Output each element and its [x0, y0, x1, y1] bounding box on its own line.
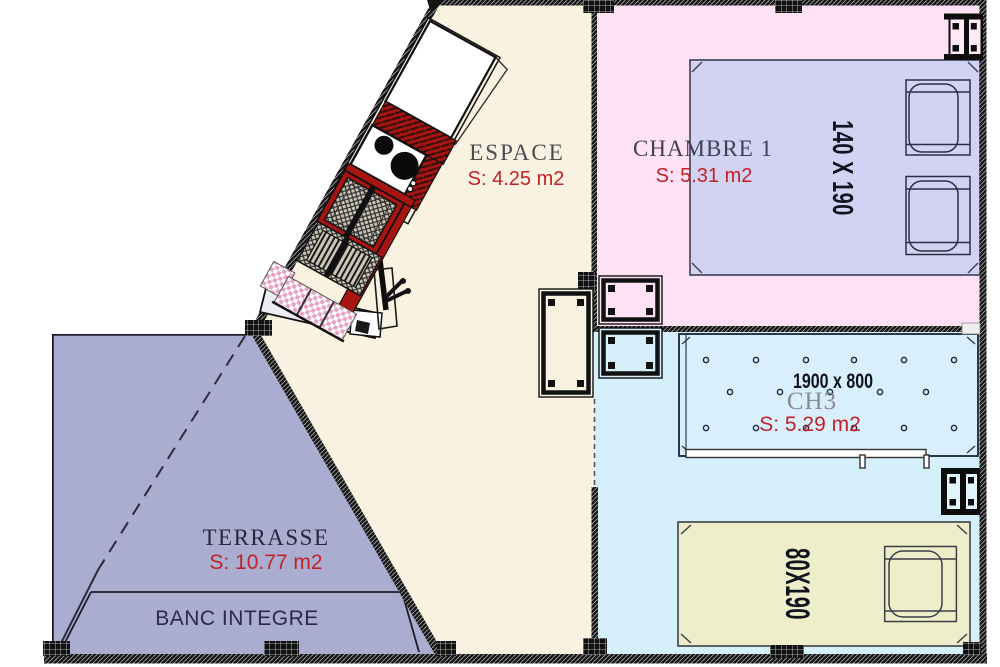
svg-text:S: 4.25 m2: S: 4.25 m2	[468, 168, 565, 190]
svg-text:BANC INTEGRE: BANC INTEGRE	[155, 607, 319, 630]
svg-text:ESPACE: ESPACE	[469, 140, 565, 165]
svg-text:CH3: CH3	[787, 388, 837, 415]
svg-text:80X190: 80X190	[779, 548, 817, 620]
svg-text:S: 5.29 m2: S: 5.29 m2	[759, 413, 861, 436]
svg-text:140 X 190: 140 X 190	[826, 120, 859, 216]
svg-text:S: 5.31 m2: S: 5.31 m2	[656, 165, 753, 187]
svg-text:TERRASSE: TERRASSE	[202, 525, 329, 550]
svg-text:S: 10.77 m2: S: 10.77 m2	[209, 551, 322, 574]
svg-text:CHAMBRE 1: CHAMBRE 1	[633, 136, 773, 161]
